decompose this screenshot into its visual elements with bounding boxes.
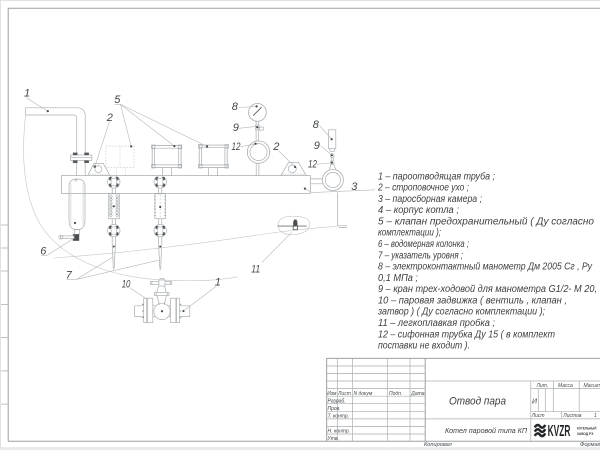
svg-text:1 – пароотводящая труба ;: 1 – пароотводящая труба ;	[378, 170, 495, 182]
svg-text:KVZR: KVZR	[548, 423, 571, 440]
svg-text:7 – указатель уровня ;: 7 – указатель уровня ;	[378, 250, 463, 261]
svg-text:12 – сифонная трубка Ду 15 (: 12 – сифонная трубка Ду 15 ( в комплект	[378, 328, 555, 340]
svg-text:4 – корпус котла ;: 4 – корпус котла ;	[378, 205, 459, 216]
svg-text:Котел паровой типа КП: Котел паровой типа КП	[445, 426, 528, 435]
svg-text:12: 12	[232, 141, 241, 153]
svg-text:2: 2	[106, 112, 113, 124]
svg-text:Копировал: Копировал	[424, 442, 453, 448]
svg-text:9: 9	[314, 140, 320, 152]
svg-text:Лист: Лист	[337, 391, 351, 397]
svg-text:Дата: Дата	[410, 391, 424, 397]
svg-text:N докум: N докум	[354, 391, 373, 397]
svg-text:8 – электроконтактный манометр: 8 – электроконтактный манометр Дм 2005 С…	[378, 262, 593, 273]
svg-text:10: 10	[122, 278, 131, 290]
svg-text:Масшт: Масшт	[584, 383, 600, 389]
svg-text:ЗАВОД РЭ: ЗАВОД РЭ	[577, 431, 594, 436]
svg-text:Разраб.: Разраб.	[328, 399, 346, 405]
svg-text:Лист: Лист	[531, 413, 545, 419]
svg-text:5 – клапан предохранительный: 5 – клапан предохранительный ( Ду соглас…	[378, 216, 594, 227]
svg-text:3: 3	[351, 181, 358, 193]
svg-text:0,1 МПа ;: 0,1 МПа ;	[378, 273, 418, 284]
svg-text:Лит.: Лит.	[536, 383, 549, 389]
svg-text:10 – паровая задвижка ( вент: 10 – паровая задвижка ( вентиль , клапан…	[378, 295, 567, 306]
svg-text:Масса: Масса	[558, 383, 573, 389]
svg-text:1: 1	[594, 413, 597, 419]
svg-text:Утв.: Утв.	[328, 436, 339, 442]
svg-text:3 – паросборная камера ;: 3 – паросборная камера ;	[378, 193, 482, 205]
svg-text:1: 1	[24, 87, 30, 99]
svg-text:КОТЕЛЬНЫЙ: КОТЕЛЬНЫЙ	[577, 425, 597, 430]
svg-text:2 – строповочное ухо ;: 2 – строповочное ухо ;	[377, 183, 469, 194]
svg-text:комплектации );: комплектации );	[378, 228, 441, 239]
svg-text:поставки не входит ).: поставки не входит ).	[378, 341, 470, 352]
svg-text:11 – легкоплавкая пробка ;: 11 – легкоплавкая пробка ;	[378, 317, 495, 329]
svg-text:8: 8	[313, 119, 320, 131]
svg-text:Пров.: Пров.	[328, 406, 341, 412]
svg-text:9 – кран трех-ходовой для ман: 9 – кран трех-ходовой для манометра G1/2…	[378, 284, 597, 295]
svg-text:9: 9	[233, 122, 239, 134]
svg-text:5: 5	[114, 94, 121, 106]
svg-text:Листов: Листов	[562, 413, 582, 419]
svg-text:1: 1	[215, 277, 221, 289]
svg-text:2: 2	[272, 141, 279, 153]
svg-text:6 – водомерная колонка ;: 6 – водомерная колонка ;	[378, 239, 469, 250]
svg-text:Н. контр.: Н. контр.	[328, 429, 351, 435]
svg-text:12: 12	[308, 159, 317, 171]
svg-text:Формат А: Формат А	[580, 442, 600, 448]
svg-text:Изм: Изм	[327, 391, 337, 397]
svg-text:затвор ) ( Ду согласно комплек: затвор ) ( Ду согласно комплектации );	[377, 307, 545, 318]
svg-text:11: 11	[251, 263, 260, 275]
svg-text:Отвод пара: Отвод пара	[449, 396, 506, 408]
svg-text:Т. контр.: Т. контр.	[328, 414, 350, 420]
svg-text:Подп.: Подп.	[389, 391, 402, 397]
svg-text:6: 6	[40, 246, 47, 258]
svg-text:7: 7	[66, 269, 73, 281]
svg-text:8: 8	[232, 101, 239, 113]
